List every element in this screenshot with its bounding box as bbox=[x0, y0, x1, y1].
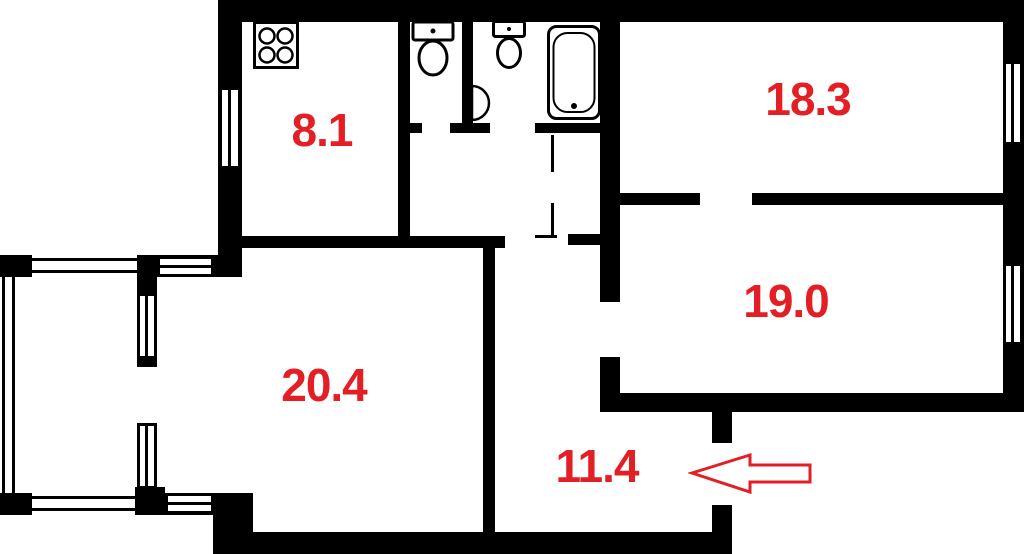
window-mullion bbox=[1011, 63, 1014, 143]
hallway-vestibule-opening bbox=[505, 236, 568, 248]
wall-central bbox=[483, 243, 495, 533]
wall-rooms-divider-right bbox=[752, 193, 1003, 205]
window-mullion bbox=[167, 502, 212, 505]
balcony-rail-left bbox=[2, 272, 15, 498]
window-mullion bbox=[1011, 265, 1014, 343]
window-mullion bbox=[159, 265, 212, 268]
toilet-icon bbox=[411, 20, 455, 78]
balcony-rail-top bbox=[32, 258, 137, 273]
door-leaf-line bbox=[551, 203, 554, 237]
wall-kitchen-right bbox=[398, 22, 410, 248]
window-room-left-side-upper bbox=[138, 294, 156, 358]
room-area-label-left: 20.4 bbox=[281, 362, 367, 408]
wall-center-right-upper bbox=[600, 22, 620, 302]
balcony-rail-bottom bbox=[32, 496, 137, 511]
entrance-arrow-icon bbox=[688, 451, 814, 495]
window-room-right bbox=[1004, 264, 1022, 344]
wall-bath-door-stub bbox=[535, 123, 600, 133]
wall-entrance-stub-bottom bbox=[712, 505, 732, 554]
window-room-top-right bbox=[1004, 62, 1022, 144]
wall-vestibule bbox=[568, 234, 600, 245]
rooms-connecting-door-opening bbox=[700, 193, 752, 205]
room-right-door-opening bbox=[600, 302, 620, 357]
window-kitchen bbox=[220, 88, 240, 168]
bathtub-icon bbox=[547, 25, 601, 120]
window-mullion bbox=[145, 425, 148, 487]
window-room-left-side-lower bbox=[138, 424, 156, 488]
floor-plan: 8.1 18.3 19.0 20.4 11.4 bbox=[0, 0, 1024, 554]
door-leaf-line bbox=[551, 135, 554, 172]
window-mullion bbox=[228, 89, 231, 167]
wc-door-opening bbox=[422, 123, 450, 133]
room-area-label-hallway: 11.4 bbox=[556, 443, 639, 489]
wall-center-right-lower bbox=[600, 357, 620, 393]
stove-icon bbox=[253, 21, 299, 69]
room-area-label-top-right: 18.3 bbox=[765, 76, 851, 122]
window-mullion bbox=[145, 295, 148, 357]
wall-room-right-bottom bbox=[600, 393, 1024, 412]
balcony-door-opening bbox=[137, 367, 157, 423]
room-area-label-kitchen: 8.1 bbox=[292, 107, 353, 153]
room-area-label-right: 19.0 bbox=[743, 278, 829, 324]
wall-wc-door-stub-left bbox=[410, 123, 422, 133]
wall-rooms-divider-left bbox=[620, 193, 700, 205]
wall-bottom bbox=[233, 532, 732, 554]
window-room-left-bottom bbox=[166, 494, 213, 513]
wall-entrance-stub-top bbox=[712, 412, 732, 443]
wall-kitchen-bottom bbox=[242, 236, 505, 248]
toilet-icon bbox=[492, 20, 526, 72]
wall-top bbox=[218, 0, 1024, 22]
window-room-left-top bbox=[158, 257, 213, 276]
sink-icon bbox=[466, 83, 492, 123]
bathroom-door-opening bbox=[490, 123, 535, 133]
